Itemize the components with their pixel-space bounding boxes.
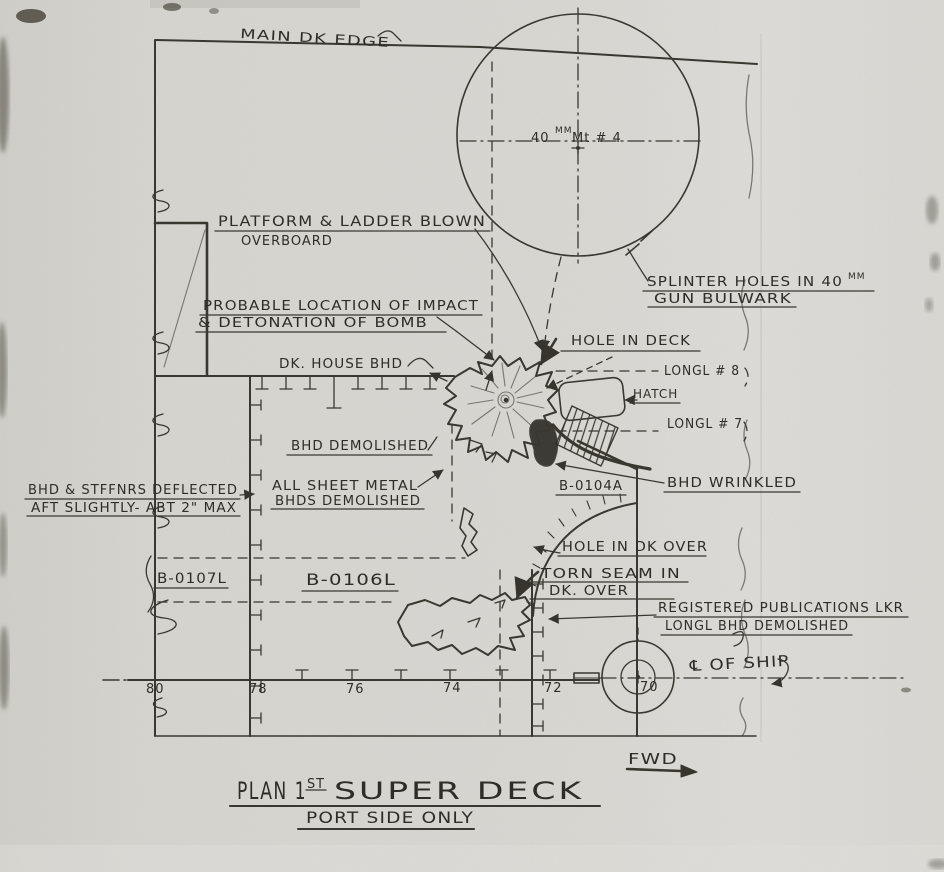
hole-in-deck-label: HOLE IN DECK bbox=[571, 334, 691, 349]
b0104a-label: B-0104A bbox=[559, 479, 623, 494]
sheet-metal-label-line1: ALL SHEET METAL bbox=[272, 479, 418, 494]
sheet-metal-label-line2: BHDS DEMOLISHED bbox=[275, 494, 421, 509]
b0107l-label: B-0107L bbox=[157, 571, 227, 587]
frame-number-70: 70 bbox=[640, 680, 659, 695]
frame-number-76: 76 bbox=[346, 682, 365, 697]
paper-fold-marks bbox=[739, 75, 753, 736]
fwd-label: FWD bbox=[628, 750, 678, 768]
paper-artifacts bbox=[0, 0, 944, 872]
centerline-of-ship-label: ℄ OF SHIP bbox=[688, 652, 790, 675]
drawing-title-pre: PLAN 1 bbox=[237, 777, 307, 805]
longl-8-label: LONGL # 8 bbox=[664, 364, 740, 379]
torn-seam-label-line1: TORN SEAM IN bbox=[540, 567, 681, 582]
gun-mount-label-num: 40 bbox=[531, 131, 550, 146]
gun-mount-label-rest: Mt # 4 bbox=[572, 131, 622, 146]
labels: MAIN DK EDGE 40 MM Mt # 4 PLATFORM & LAD… bbox=[28, 27, 904, 827]
frame-number-74: 74 bbox=[443, 681, 462, 696]
deflected-label-line2: AFT SLIGHTLY- ABT 2" MAX bbox=[31, 501, 237, 516]
hole-in-dk-over-label: HOLE IN DK OVER bbox=[562, 540, 708, 555]
splinter-label-line2: GUN BULWARK bbox=[654, 292, 792, 307]
dk-house-bhd-label: DK. HOUSE BHD bbox=[279, 357, 403, 372]
reg-pubs-label-line2: LONGL BHD DEMOLISHED bbox=[665, 619, 849, 634]
paper-grain bbox=[0, 0, 944, 872]
platform-label-line1: PLATFORM & LADDER BLOWN bbox=[218, 214, 486, 230]
bhd-demolished-label: BHD DEMOLISHED bbox=[291, 439, 429, 454]
probable-impact-label-line1: PROBABLE LOCATION OF IMPACT bbox=[203, 299, 479, 314]
deflected-label-line1: BHD & STFFNRS DEFLECTED bbox=[28, 483, 238, 498]
platform-label-line2: OVERBOARD bbox=[241, 234, 333, 249]
gun-mount-label-sup: MM bbox=[555, 126, 573, 136]
probable-impact-label-line2: & DETONATION OF BOMB bbox=[198, 316, 428, 331]
drawing-subtitle: PORT SIDE ONLY bbox=[306, 808, 474, 827]
splinter-label-line1: SPLINTER HOLES IN 40 bbox=[647, 275, 843, 290]
reg-pubs-label-line1: REGISTERED PUBLICATIONS LKR bbox=[658, 601, 904, 616]
main-dk-edge-label: MAIN DK EDGE bbox=[240, 27, 391, 51]
frame-number-80: 80 bbox=[146, 682, 165, 697]
label-underlines bbox=[25, 231, 908, 829]
hatch-label: HATCH bbox=[633, 387, 678, 401]
frame-number-72: 72 bbox=[544, 681, 563, 696]
drawing-title-post: SUPER DECK bbox=[334, 777, 584, 805]
torn-seam-label-line2: DK. OVER bbox=[549, 584, 629, 599]
bhd-wrinkled-label: BHD WRINKLED bbox=[667, 476, 797, 491]
b0106l-label: B-0106L bbox=[306, 570, 396, 589]
drawing-title-sup: ST bbox=[307, 777, 325, 792]
damage-plan-sheet: MAIN DK EDGE 40 MM Mt # 4 PLATFORM & LAD… bbox=[0, 0, 944, 872]
longl-7-label: LONGL # 7 bbox=[667, 417, 743, 432]
splinter-label-sup: MM bbox=[848, 272, 866, 282]
frame-number-78: 78 bbox=[249, 682, 268, 697]
blueprint-canvas: MAIN DK EDGE 40 MM Mt # 4 PLATFORM & LAD… bbox=[0, 0, 944, 872]
